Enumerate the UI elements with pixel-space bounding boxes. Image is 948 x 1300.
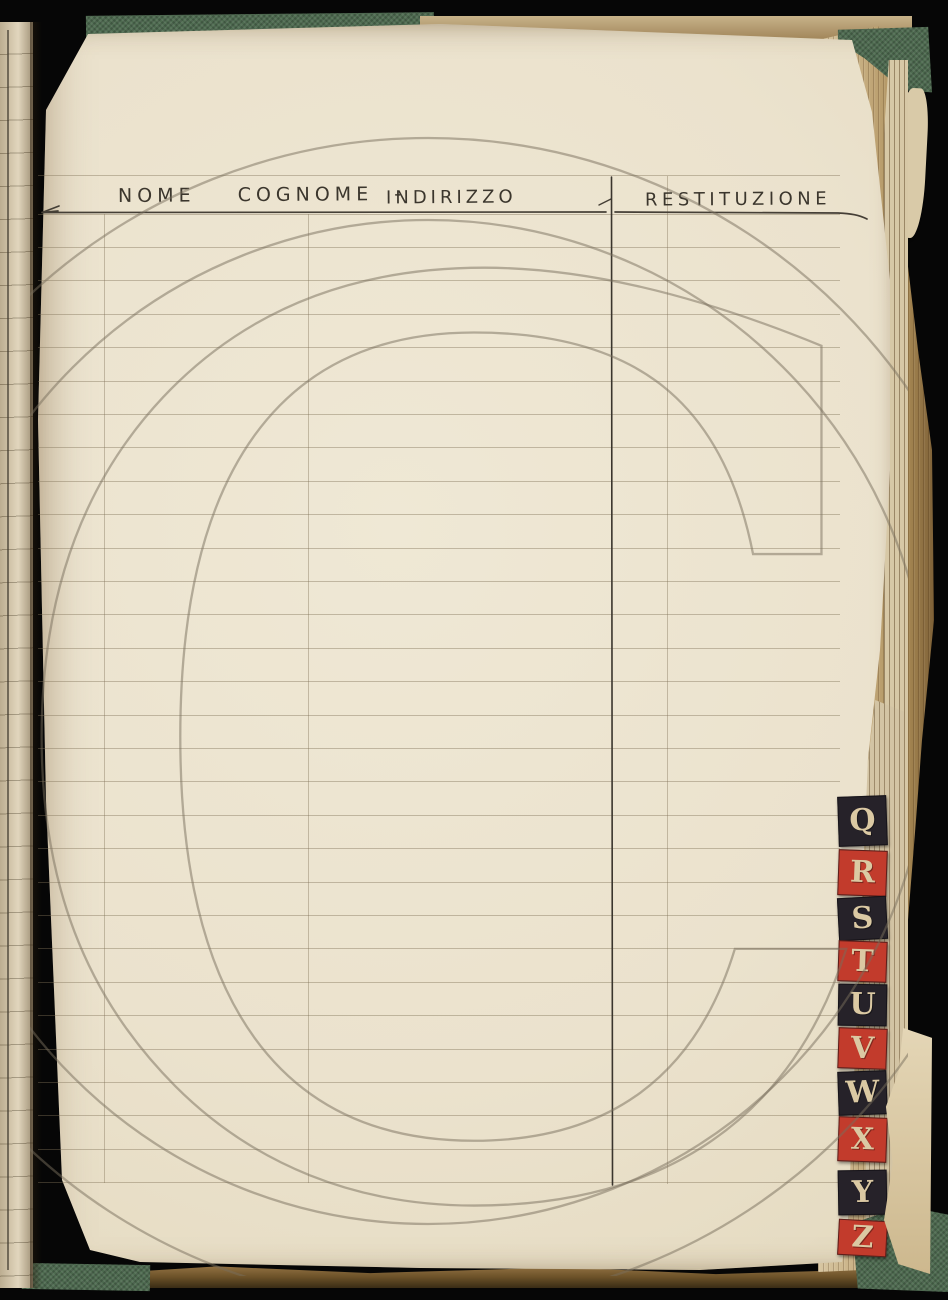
header-name-surname-label: NOME COGNOME -	[118, 183, 406, 207]
index-tab-letter: Z	[851, 1222, 874, 1253]
index-tab-t: T	[837, 940, 887, 983]
index-tab-letter: W	[845, 1077, 880, 1108]
index-tab-q: Q	[837, 795, 888, 847]
index-tab-r: R	[837, 849, 888, 897]
gutter-crease	[30, 22, 42, 1288]
index-tab-x: X	[837, 1116, 888, 1163]
index-tab-letter: Y	[852, 1177, 874, 1207]
ledger-page	[34, 24, 896, 1272]
index-tab-s: S	[837, 896, 888, 942]
index-tab-y: Y	[838, 1170, 888, 1216]
sliver-margin-line	[7, 30, 9, 1270]
index-tab-letter: X	[850, 1124, 874, 1155]
index-tab-letter: U	[849, 990, 876, 1020]
index-tab-letter: T	[851, 946, 874, 977]
header-return-label: RESTITUZIONE	[645, 188, 831, 210]
photo-backdrop: NOME COGNOME - INDIRIZZO RESTITUZIONE QR…	[0, 0, 948, 1300]
index-tab-letter: V	[850, 1033, 874, 1064]
index-tab-letter: S	[851, 903, 874, 934]
index-tab-v: V	[837, 1027, 887, 1070]
index-tab-w: W	[837, 1070, 888, 1116]
index-tab-letter: R	[850, 858, 876, 889]
header-address-label: INDIRIZZO	[386, 187, 517, 209]
index-tab-letter: Q	[849, 806, 876, 837]
index-tab-u: U	[838, 984, 888, 1027]
facing-page-sliver	[0, 22, 33, 1288]
index-tab-z: Z	[837, 1219, 888, 1258]
